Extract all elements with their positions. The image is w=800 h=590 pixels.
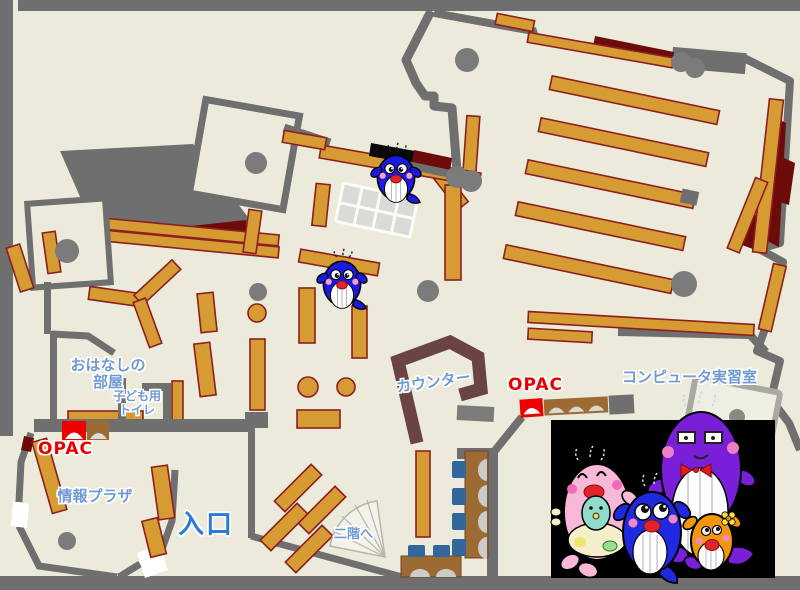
chair [452, 513, 466, 530]
library-floor-map: おはなしの 部屋 子ども用 トイレ OPAC 情報プラザ 入口 二階へ カウンタ… [0, 0, 800, 590]
chair [452, 539, 466, 556]
round-table [298, 377, 318, 397]
info-plaza-label: 情報プラザ [53, 488, 137, 505]
round-table [248, 304, 266, 322]
chair [452, 461, 466, 478]
round-table [337, 378, 355, 396]
stairs-label: 二階へ [334, 528, 373, 543]
chair [452, 488, 466, 505]
chair [408, 545, 425, 557]
computer-room-label: コンピュータ実習室 [622, 369, 757, 386]
opac-left-label: OPAC [38, 440, 93, 460]
opac-terminal-left [62, 421, 109, 440]
chair [433, 545, 450, 557]
entrance-label: 入口 [178, 511, 234, 541]
opac-right-label: OPAC [508, 376, 563, 396]
kids-toilet-label: 子ども用 トイレ [104, 390, 170, 418]
story-room-label: おはなしの 部屋 [52, 357, 164, 392]
